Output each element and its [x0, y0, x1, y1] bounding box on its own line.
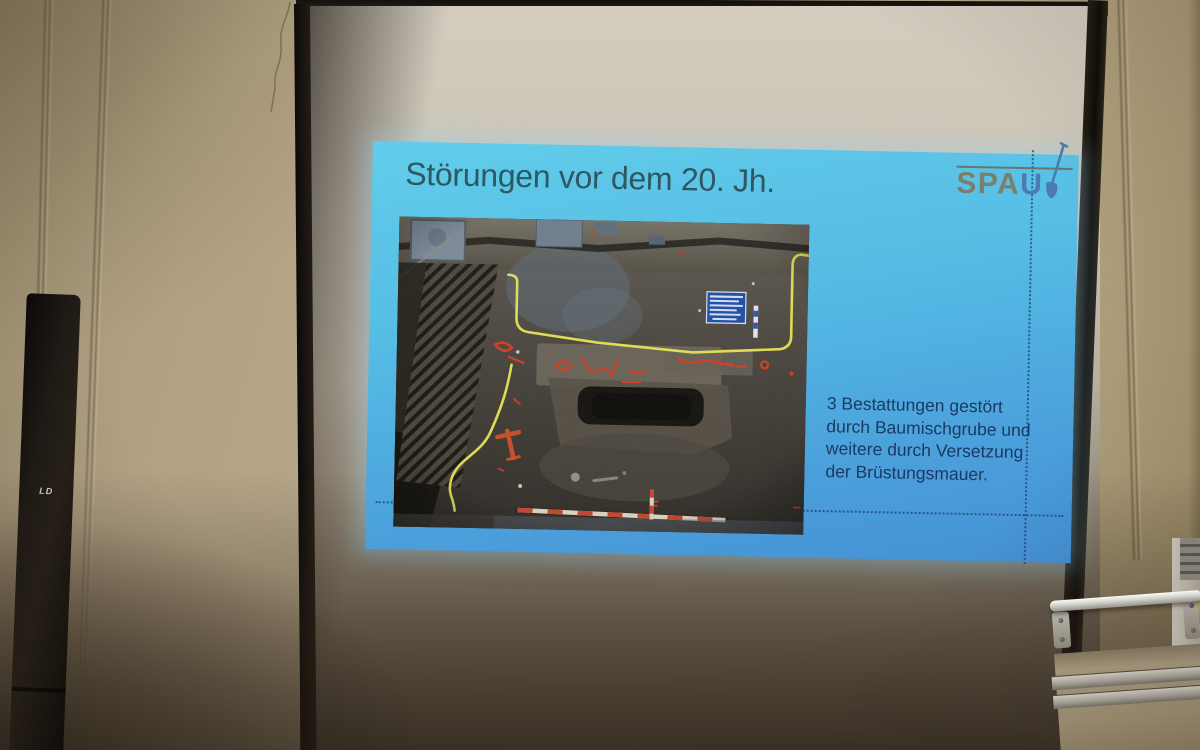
wall-edge-shade-right	[1188, 0, 1200, 560]
wall-moulding-right	[1116, 0, 1144, 560]
speaker-brand-label: LD	[19, 485, 73, 497]
slide-title: Störungen vor dem 20. Jh.	[405, 156, 775, 200]
wall-vent	[1180, 538, 1200, 580]
excavation-photo	[393, 217, 809, 535]
logo-text-gray: SPA	[956, 167, 1021, 201]
column-speaker: LD	[9, 293, 81, 750]
handle-mount-plate	[1052, 611, 1071, 648]
shovel-icon	[1036, 140, 1073, 203]
presentation-slide: Störungen vor dem 20. Jh. SPAU	[365, 141, 1079, 563]
dotted-guide-vertical	[1024, 150, 1034, 564]
body-line: der Brüstungsmauer.	[825, 460, 1040, 487]
handle-mount-plate	[1183, 597, 1200, 640]
equipment-case	[1054, 644, 1200, 750]
conference-room-photo: Störungen vor dem 20. Jh. SPAU	[0, 0, 1200, 750]
slide-body-text: 3 Bestattungen gestört durch Baumischgru…	[825, 392, 1042, 486]
wall-moulding-left-2	[74, 0, 113, 750]
spau-logo: SPAU	[956, 167, 1044, 203]
